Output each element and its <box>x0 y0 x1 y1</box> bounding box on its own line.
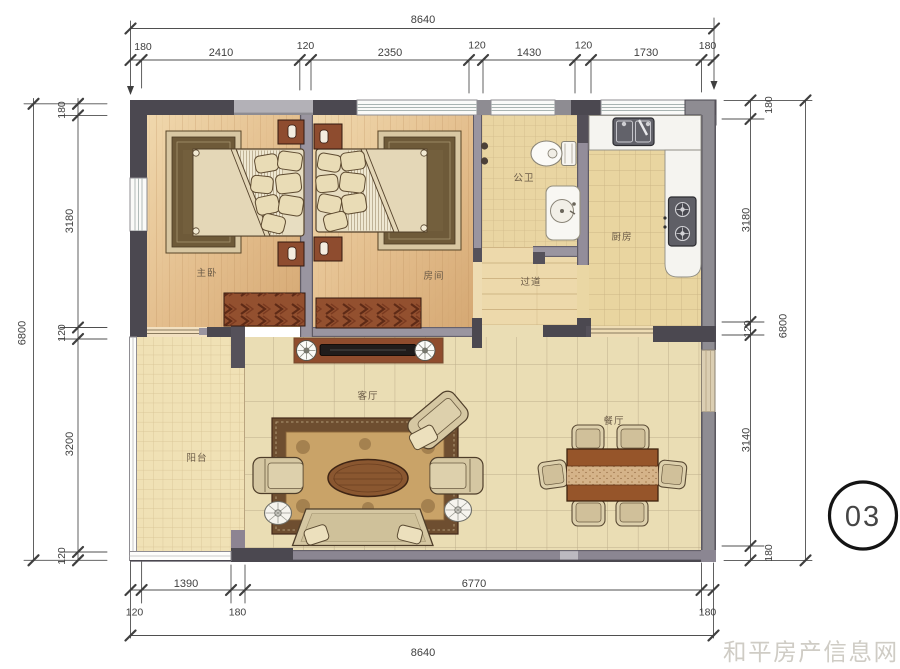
svg-text:120: 120 <box>126 607 144 619</box>
svg-text:阳台: 阳台 <box>186 452 207 464</box>
svg-text:和平房产信息网: 和平房产信息网 <box>723 639 899 665</box>
svg-text:03: 03 <box>845 501 881 533</box>
svg-text:公卫: 公卫 <box>513 173 534 184</box>
svg-text:120: 120 <box>468 40 486 52</box>
svg-text:180: 180 <box>763 544 775 562</box>
svg-text:180: 180 <box>763 96 775 114</box>
svg-text:8640: 8640 <box>411 14 435 26</box>
svg-text:120: 120 <box>56 324 68 342</box>
svg-text:120: 120 <box>56 547 68 565</box>
svg-text:客厅: 客厅 <box>357 390 378 402</box>
svg-text:120: 120 <box>575 40 593 52</box>
svg-text:3200: 3200 <box>64 432 76 456</box>
svg-text:180: 180 <box>229 607 247 619</box>
svg-text:3140: 3140 <box>741 428 753 452</box>
svg-text:1430: 1430 <box>517 47 541 59</box>
svg-text:餐厅: 餐厅 <box>603 415 624 427</box>
svg-text:2410: 2410 <box>209 47 233 59</box>
svg-text:1730: 1730 <box>634 47 658 59</box>
svg-text:厨房: 厨房 <box>611 231 632 243</box>
svg-text:2350: 2350 <box>378 47 402 59</box>
svg-text:180: 180 <box>56 101 68 119</box>
svg-text:3180: 3180 <box>741 208 753 232</box>
svg-text:1390: 1390 <box>174 578 198 590</box>
svg-text:主卧: 主卧 <box>196 267 217 279</box>
svg-text:180: 180 <box>134 41 152 53</box>
svg-text:6770: 6770 <box>462 578 486 590</box>
svg-text:120: 120 <box>297 40 315 52</box>
svg-text:120: 120 <box>742 320 754 338</box>
svg-text:房间: 房间 <box>423 270 444 282</box>
svg-text:6800: 6800 <box>17 321 29 345</box>
svg-text:6800: 6800 <box>778 314 790 338</box>
svg-text:180: 180 <box>699 40 717 52</box>
svg-text:8640: 8640 <box>411 647 435 659</box>
svg-text:180: 180 <box>699 607 717 619</box>
svg-text:3180: 3180 <box>64 209 76 233</box>
svg-text:过道: 过道 <box>520 276 541 288</box>
